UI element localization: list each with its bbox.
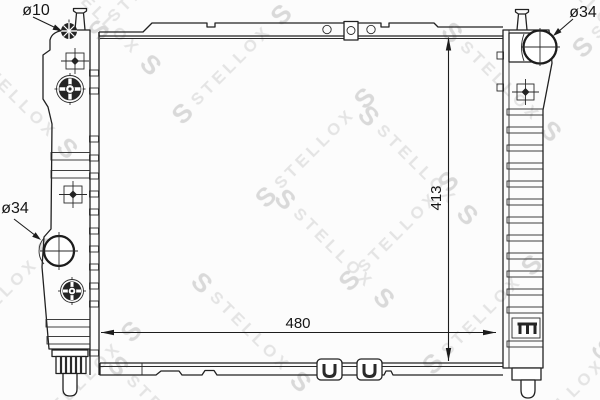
mount-pin [521,380,535,398]
dim-width-label: 480 [285,315,310,332]
port-left-label: ø34 [1,200,29,217]
drain-valve-pin [63,374,77,397]
top-mount-bracket [344,22,358,41]
dim-height-label: 413 [428,185,445,210]
drawing-canvas: SSTELLOXS SSTELLOXS [0,0,600,400]
radiator-technical-drawing: SSTELLOXS SSTELLOXS [0,0,600,400]
port-top-left-label: ø10 [22,2,50,19]
port-top-right-label: ø34 [569,4,597,21]
